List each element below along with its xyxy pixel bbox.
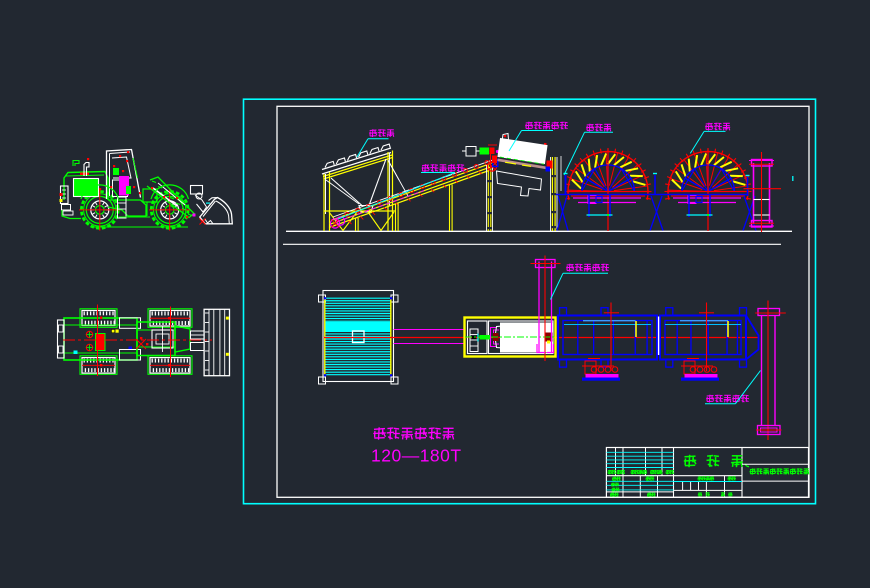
svg-text:120—180T: 120—180T [371,446,462,466]
